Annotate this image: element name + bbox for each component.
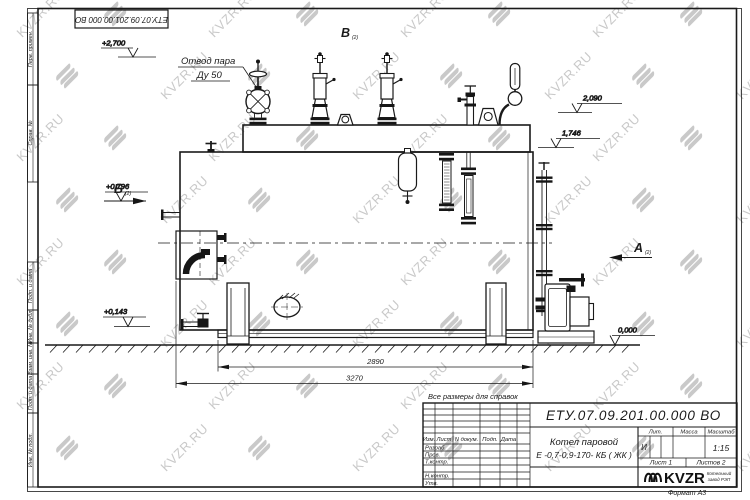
safety-valve-2 — [378, 52, 403, 124]
tb-row-nkontr: Н.контр. — [425, 474, 450, 480]
lug-small — [338, 115, 354, 126]
tb-col-izm: Изм. — [423, 437, 435, 443]
tb-lit-value: И — [641, 443, 647, 452]
kvzr-logo-sub2: завод РЭП — [707, 477, 731, 482]
tb-sheets-info: Листов 2 — [695, 460, 725, 467]
margin-label-perv: Перв. примен. — [28, 31, 34, 68]
margin-label-podp2: Подп. и дата — [28, 376, 34, 410]
callout-line2: Ду 50 — [196, 70, 222, 81]
level-2090: 2,090 — [558, 94, 622, 113]
view-label-a-sub: (2) — [645, 250, 651, 256]
separator-vessel — [399, 149, 417, 205]
boiler-side-view — [158, 52, 594, 344]
burner-elbow — [186, 255, 205, 274]
level-0143: +0,143 — [103, 307, 150, 327]
level-2700: +2,700 — [101, 39, 156, 58]
view-label-b-sub: (2) — [125, 191, 131, 197]
level-2090-text: 2,090 — [582, 94, 603, 103]
view-label-b: Б — [114, 182, 123, 196]
kvzr-logo: KVZR Котельный завод РЭП — [645, 470, 732, 487]
gauge-glass-2 — [461, 152, 476, 224]
margin-label-inv-dubl: Инв. № дубл. — [28, 309, 34, 343]
level-0000-text: 0,000 — [618, 326, 638, 335]
burner-box — [176, 231, 227, 279]
margin-label-inv-podl: Инв. № подл. — [28, 433, 34, 467]
view-label-v-sub: (2) — [352, 35, 358, 41]
support-leg-right — [486, 283, 506, 344]
level-0143-text: +0,143 — [104, 307, 128, 316]
safety-valve-1 — [311, 52, 336, 124]
tb-col-data: Дата — [500, 437, 517, 443]
tb-col-ndok: N докум. — [455, 437, 478, 443]
steam-drum — [243, 125, 530, 152]
tb-row-razrab: Разраб. — [425, 446, 446, 452]
level-1746-text: 1,746 — [562, 129, 582, 138]
drawing-canvas: Перв. примен. Справ. № Подп. и дата Инв.… — [0, 0, 750, 500]
feed-pump — [536, 274, 595, 344]
dim-3270: 3270 — [346, 374, 364, 383]
tb-col-podp: Подп. — [482, 437, 497, 443]
tb-row-prov: Пров. — [425, 453, 440, 459]
tb-scale-value: 1:15 — [713, 443, 730, 453]
top-stamp-text: ЕТУ.07.09.201.00.000 ВО — [75, 15, 168, 24]
support-leg-left — [227, 283, 249, 344]
tb-sheet-info: Лист 1 — [649, 460, 673, 467]
view-label-a: А — [633, 241, 643, 255]
drawing-sheet: KVZR.RUKVZR.RUKVZR.RUKVZR.RUKVZR.RUKVZR.… — [0, 0, 750, 500]
standpipe-valve — [458, 86, 477, 126]
margin-label-sprav: Справ. № — [28, 120, 34, 145]
format-note: Формат А3 — [668, 490, 706, 497]
tb-row-utv: Утв. — [424, 481, 438, 487]
callout-line1: Отвод пара — [181, 56, 235, 67]
gauge-glass-1 — [439, 153, 454, 211]
dim-2890: 2890 — [366, 357, 385, 366]
tb-mass-label: Масса — [680, 430, 698, 436]
spring-icon — [645, 474, 661, 482]
drain-valve — [181, 314, 209, 331]
margin-label-podp1: Подп. и дата — [28, 269, 34, 303]
ground-line — [45, 345, 640, 353]
margin-label-vzam: Взам. инв. № — [28, 341, 34, 375]
tb-scale-label: Масштаб — [707, 430, 735, 436]
level-0000: 0,000 — [610, 326, 655, 346]
view-label-v: В — [341, 26, 350, 40]
manhole — [271, 293, 303, 321]
lifting-lug — [479, 109, 499, 126]
steam-outlet-valve — [246, 60, 270, 125]
title-block: Все размеры для справок ЕТУ.07.09.201.00… — [423, 392, 737, 497]
tb-col-list: Лист — [436, 437, 452, 443]
tb-row-tkontr: Т.контр. — [425, 460, 448, 466]
titleblock-name-line2: Е -0,7-0,9-170- КБ ( ЖК ) — [536, 450, 632, 460]
ref-note: Все размеры для справок — [428, 392, 518, 401]
left-wall-fittings — [161, 141, 217, 330]
pump-motor — [570, 297, 589, 326]
titleblock-designation: ЕТУ.07.09.201.00.000 ВО — [546, 408, 721, 423]
titleblock-name-line1: Котел паровой — [550, 437, 619, 448]
level-1746: 1,746 — [538, 129, 600, 148]
siphon-gauge — [500, 64, 522, 126]
tb-lit-label: Лит. — [648, 430, 663, 436]
kvzr-logo-sub1: Котельный — [707, 470, 732, 476]
steam-outlet-callout: Отвод пара Ду 50 — [178, 56, 258, 89]
kvzr-logo-text: KVZR — [664, 470, 705, 487]
level-2700-text: +2,700 — [102, 39, 126, 48]
